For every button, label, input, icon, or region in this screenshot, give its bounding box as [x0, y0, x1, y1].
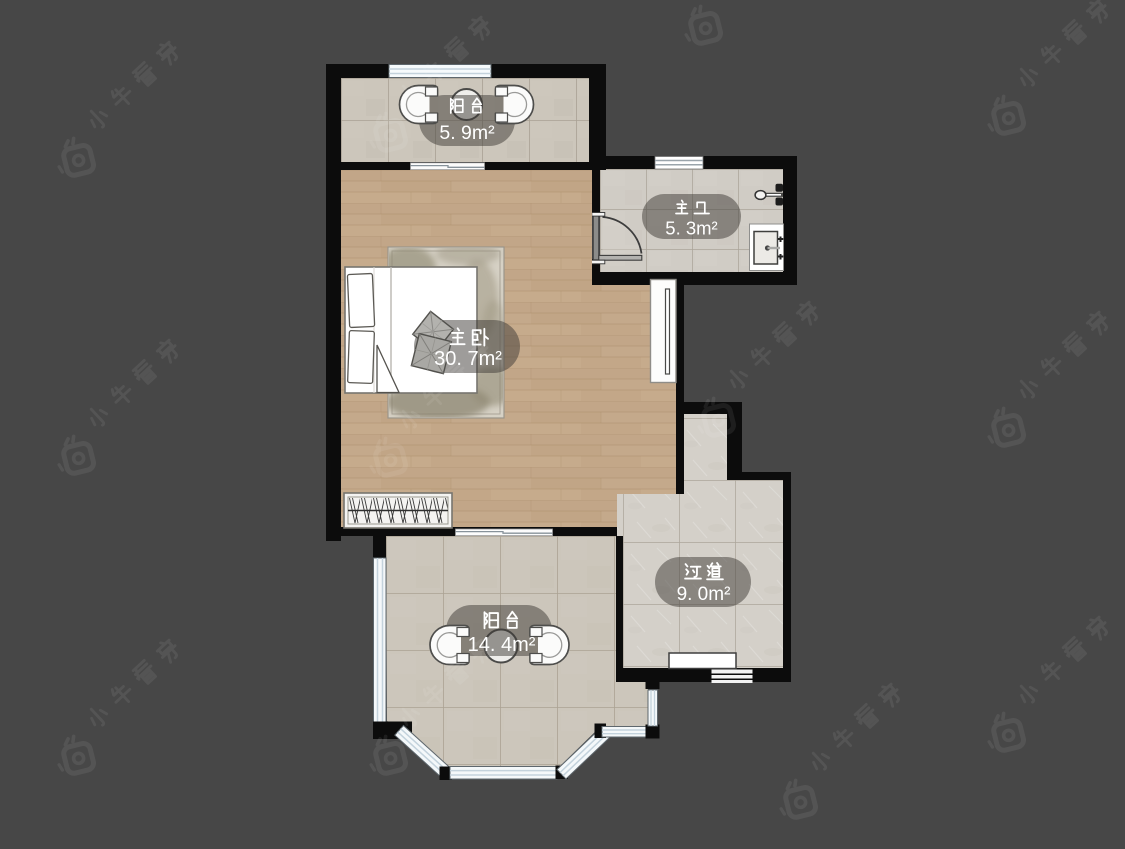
svg-text:5. 9m²: 5. 9m² [439, 122, 495, 144]
svg-text:9. 0m²: 9. 0m² [677, 584, 731, 605]
svg-text:30. 7m²: 30. 7m² [434, 348, 502, 370]
svg-text:5. 3m²: 5. 3m² [665, 218, 717, 239]
